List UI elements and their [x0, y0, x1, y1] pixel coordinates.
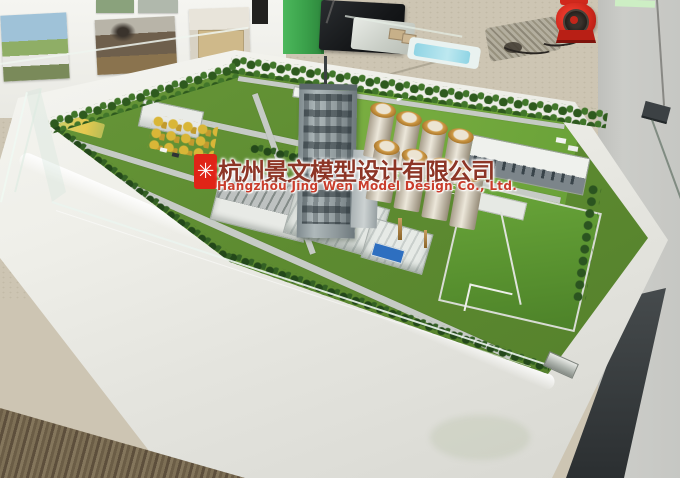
flower-asterisk-icon: ✳ [197, 159, 215, 183]
wall-photo-small-1 [96, 0, 134, 13]
showroom-photo: ✳ 杭州景文模型设计有限公司 Hangzhou Jing Wen Model D… [0, 0, 680, 478]
brass-stack [398, 218, 402, 240]
watermark-company-en: Hangzhou Jing Wen Model Design Co., Ltd. [217, 179, 517, 193]
model-car [172, 152, 180, 158]
wall-photo-dark-frame [252, 0, 268, 24]
model-car [160, 147, 168, 153]
green-pillar [283, 0, 324, 54]
fan-hub [570, 16, 578, 24]
wall-photo-industrial-smoke [110, 22, 136, 42]
fan-base [556, 30, 596, 43]
table-front-reflection [430, 415, 530, 460]
wall-photo-landscape [0, 12, 69, 81]
wall-photo-small-2 [138, 0, 178, 13]
wall-green-strip [615, 0, 655, 8]
brass-stack [424, 230, 427, 248]
watermark-logo: ✳ [194, 154, 217, 189]
